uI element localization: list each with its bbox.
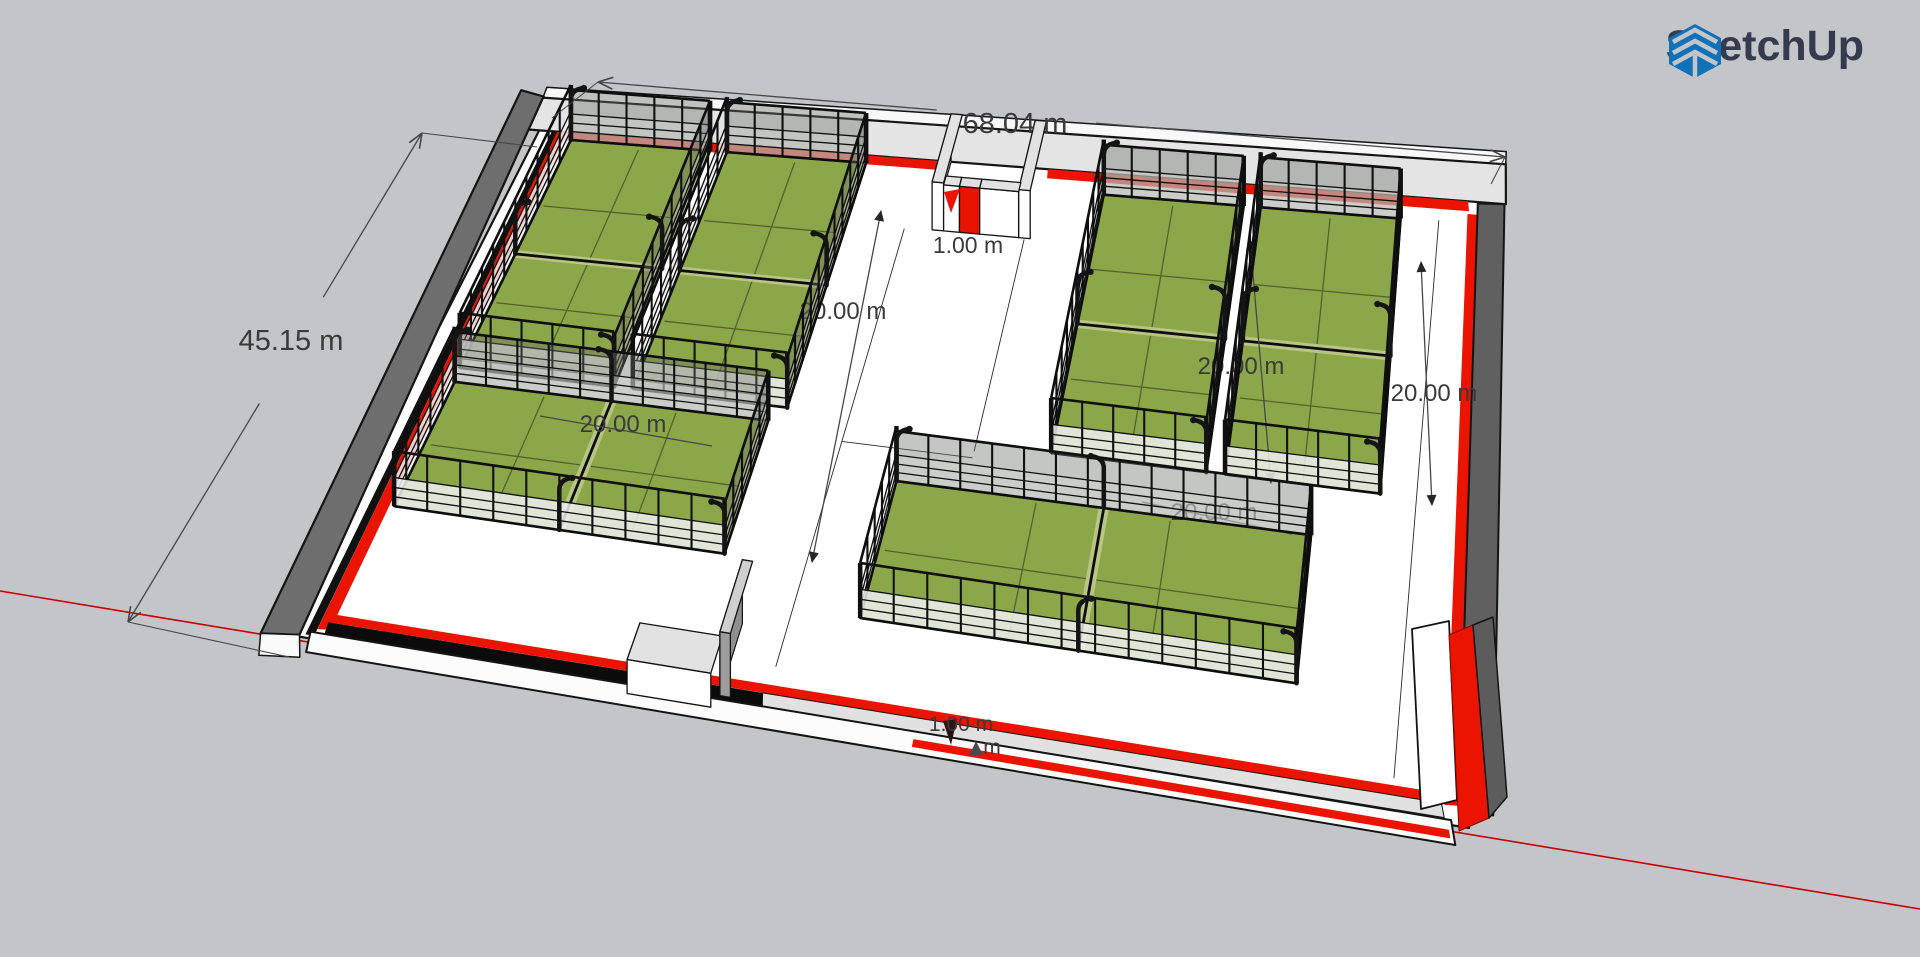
sketchup-logo: SketchUp xyxy=(1666,22,1864,71)
svg-text:m: m xyxy=(983,736,1001,759)
wall-box[interactable] xyxy=(960,177,983,234)
model-scene[interactable]: 20.00 m20.00 m20.00 m20.00 m20.00 m68.04… xyxy=(0,0,1920,957)
sketchup-logo-icon xyxy=(1666,22,1724,80)
svg-text:1.00 m: 1.00 m xyxy=(929,713,993,736)
svg-text:20.00 m: 20.00 m xyxy=(580,411,667,438)
svg-text:20.00 m: 20.00 m xyxy=(1391,380,1478,407)
sketchup-viewport[interactable]: 20.00 m20.00 m20.00 m20.00 m20.00 m68.04… xyxy=(0,0,1920,957)
svg-text:1.00 m: 1.00 m xyxy=(933,232,1003,258)
dimension-m-4[interactable]: m xyxy=(983,736,1001,759)
wall-box[interactable] xyxy=(627,623,722,707)
dimension-1-00-m-2[interactable]: 1.00 m xyxy=(933,232,1003,258)
svg-text:45.15 m: 45.15 m xyxy=(239,325,344,357)
wall-box[interactable] xyxy=(980,179,1021,237)
svg-text:68.04 m: 68.04 m xyxy=(963,108,1068,140)
dimension-1-00-m-3[interactable]: 1.00 m xyxy=(929,713,993,736)
